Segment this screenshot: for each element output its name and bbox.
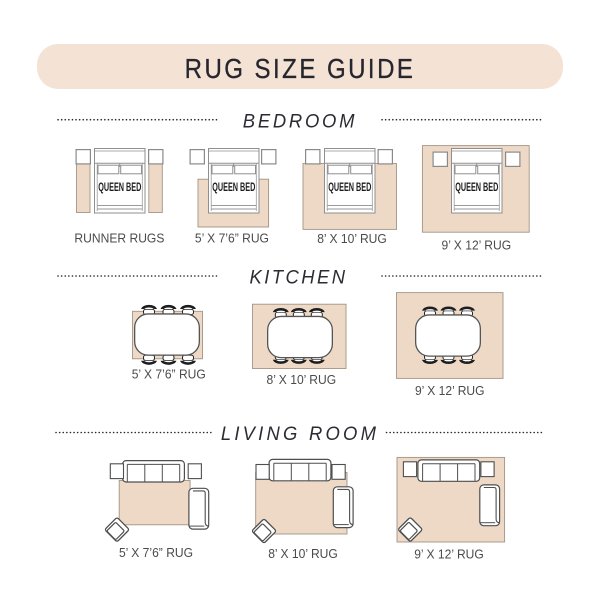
svg-text:KITCHEN: KITCHEN <box>249 267 347 289</box>
svg-text:5’ X 7’6” RUG: 5’ X 7’6” RUG <box>132 367 206 381</box>
svg-text:8’ X 10’ RUG: 8’ X 10’ RUG <box>268 547 338 561</box>
svg-text:RUNNER RUGS: RUNNER RUGS <box>74 231 164 245</box>
svg-text:9’ X 12’ RUG: 9’ X 12’ RUG <box>414 547 484 561</box>
svg-text:9’ X 12’ RUG: 9’ X 12’ RUG <box>415 384 485 398</box>
svg-text:5’ X 7’6” RUG: 5’ X 7’6” RUG <box>195 231 269 245</box>
svg-text:9’ X 12’ RUG: 9’ X 12’ RUG <box>441 238 511 252</box>
svg-text:LIVING ROOM: LIVING ROOM <box>221 423 379 445</box>
svg-text:8’ X 10’ RUG: 8’ X 10’ RUG <box>317 232 387 246</box>
svg-text:RUG SIZE GUIDE: RUG SIZE GUIDE <box>185 55 416 85</box>
svg-text:5’ X 7’6” RUG: 5’ X 7’6” RUG <box>119 546 193 560</box>
svg-text:8’ X 10’ RUG: 8’ X 10’ RUG <box>266 373 336 387</box>
svg-text:BEDROOM: BEDROOM <box>243 111 357 133</box>
